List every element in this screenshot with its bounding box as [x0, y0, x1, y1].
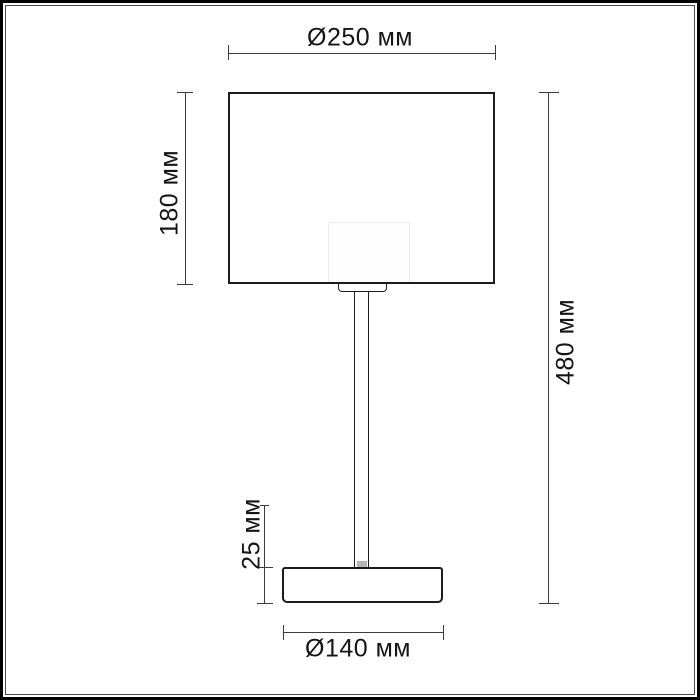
dim-line-base-diameter [283, 632, 443, 633]
dim-tick [228, 45, 229, 60]
dim-line-total-height [548, 92, 549, 603]
dim-label-base-diameter: Ø140 мм [305, 635, 411, 664]
dim-tick [539, 603, 559, 604]
dim-tick [257, 603, 273, 604]
dim-tick [443, 625, 444, 640]
dim-line-shade-height [185, 92, 186, 284]
dim-tick [495, 45, 496, 60]
dim-label-shade-diameter: Ø250 мм [307, 24, 413, 53]
dim-tick [539, 92, 559, 93]
dim-tick [283, 625, 284, 640]
dim-tick [177, 92, 193, 93]
lamp-base-outline [282, 567, 443, 603]
dim-label-total-height: 480 мм [552, 299, 581, 385]
dim-label-base-height: 25 мм [238, 498, 267, 570]
dim-tick [177, 284, 193, 285]
lamp-socket-collar [338, 284, 387, 292]
dim-line-shade-diameter [228, 53, 495, 54]
drawing-canvas: Ø250 мм 180 мм 480 мм 25 мм Ø140 мм [0, 0, 700, 700]
lamp-stem [354, 292, 369, 567]
dim-label-shade-height: 180 мм [156, 150, 185, 236]
lamp-shade-outline [228, 92, 495, 284]
